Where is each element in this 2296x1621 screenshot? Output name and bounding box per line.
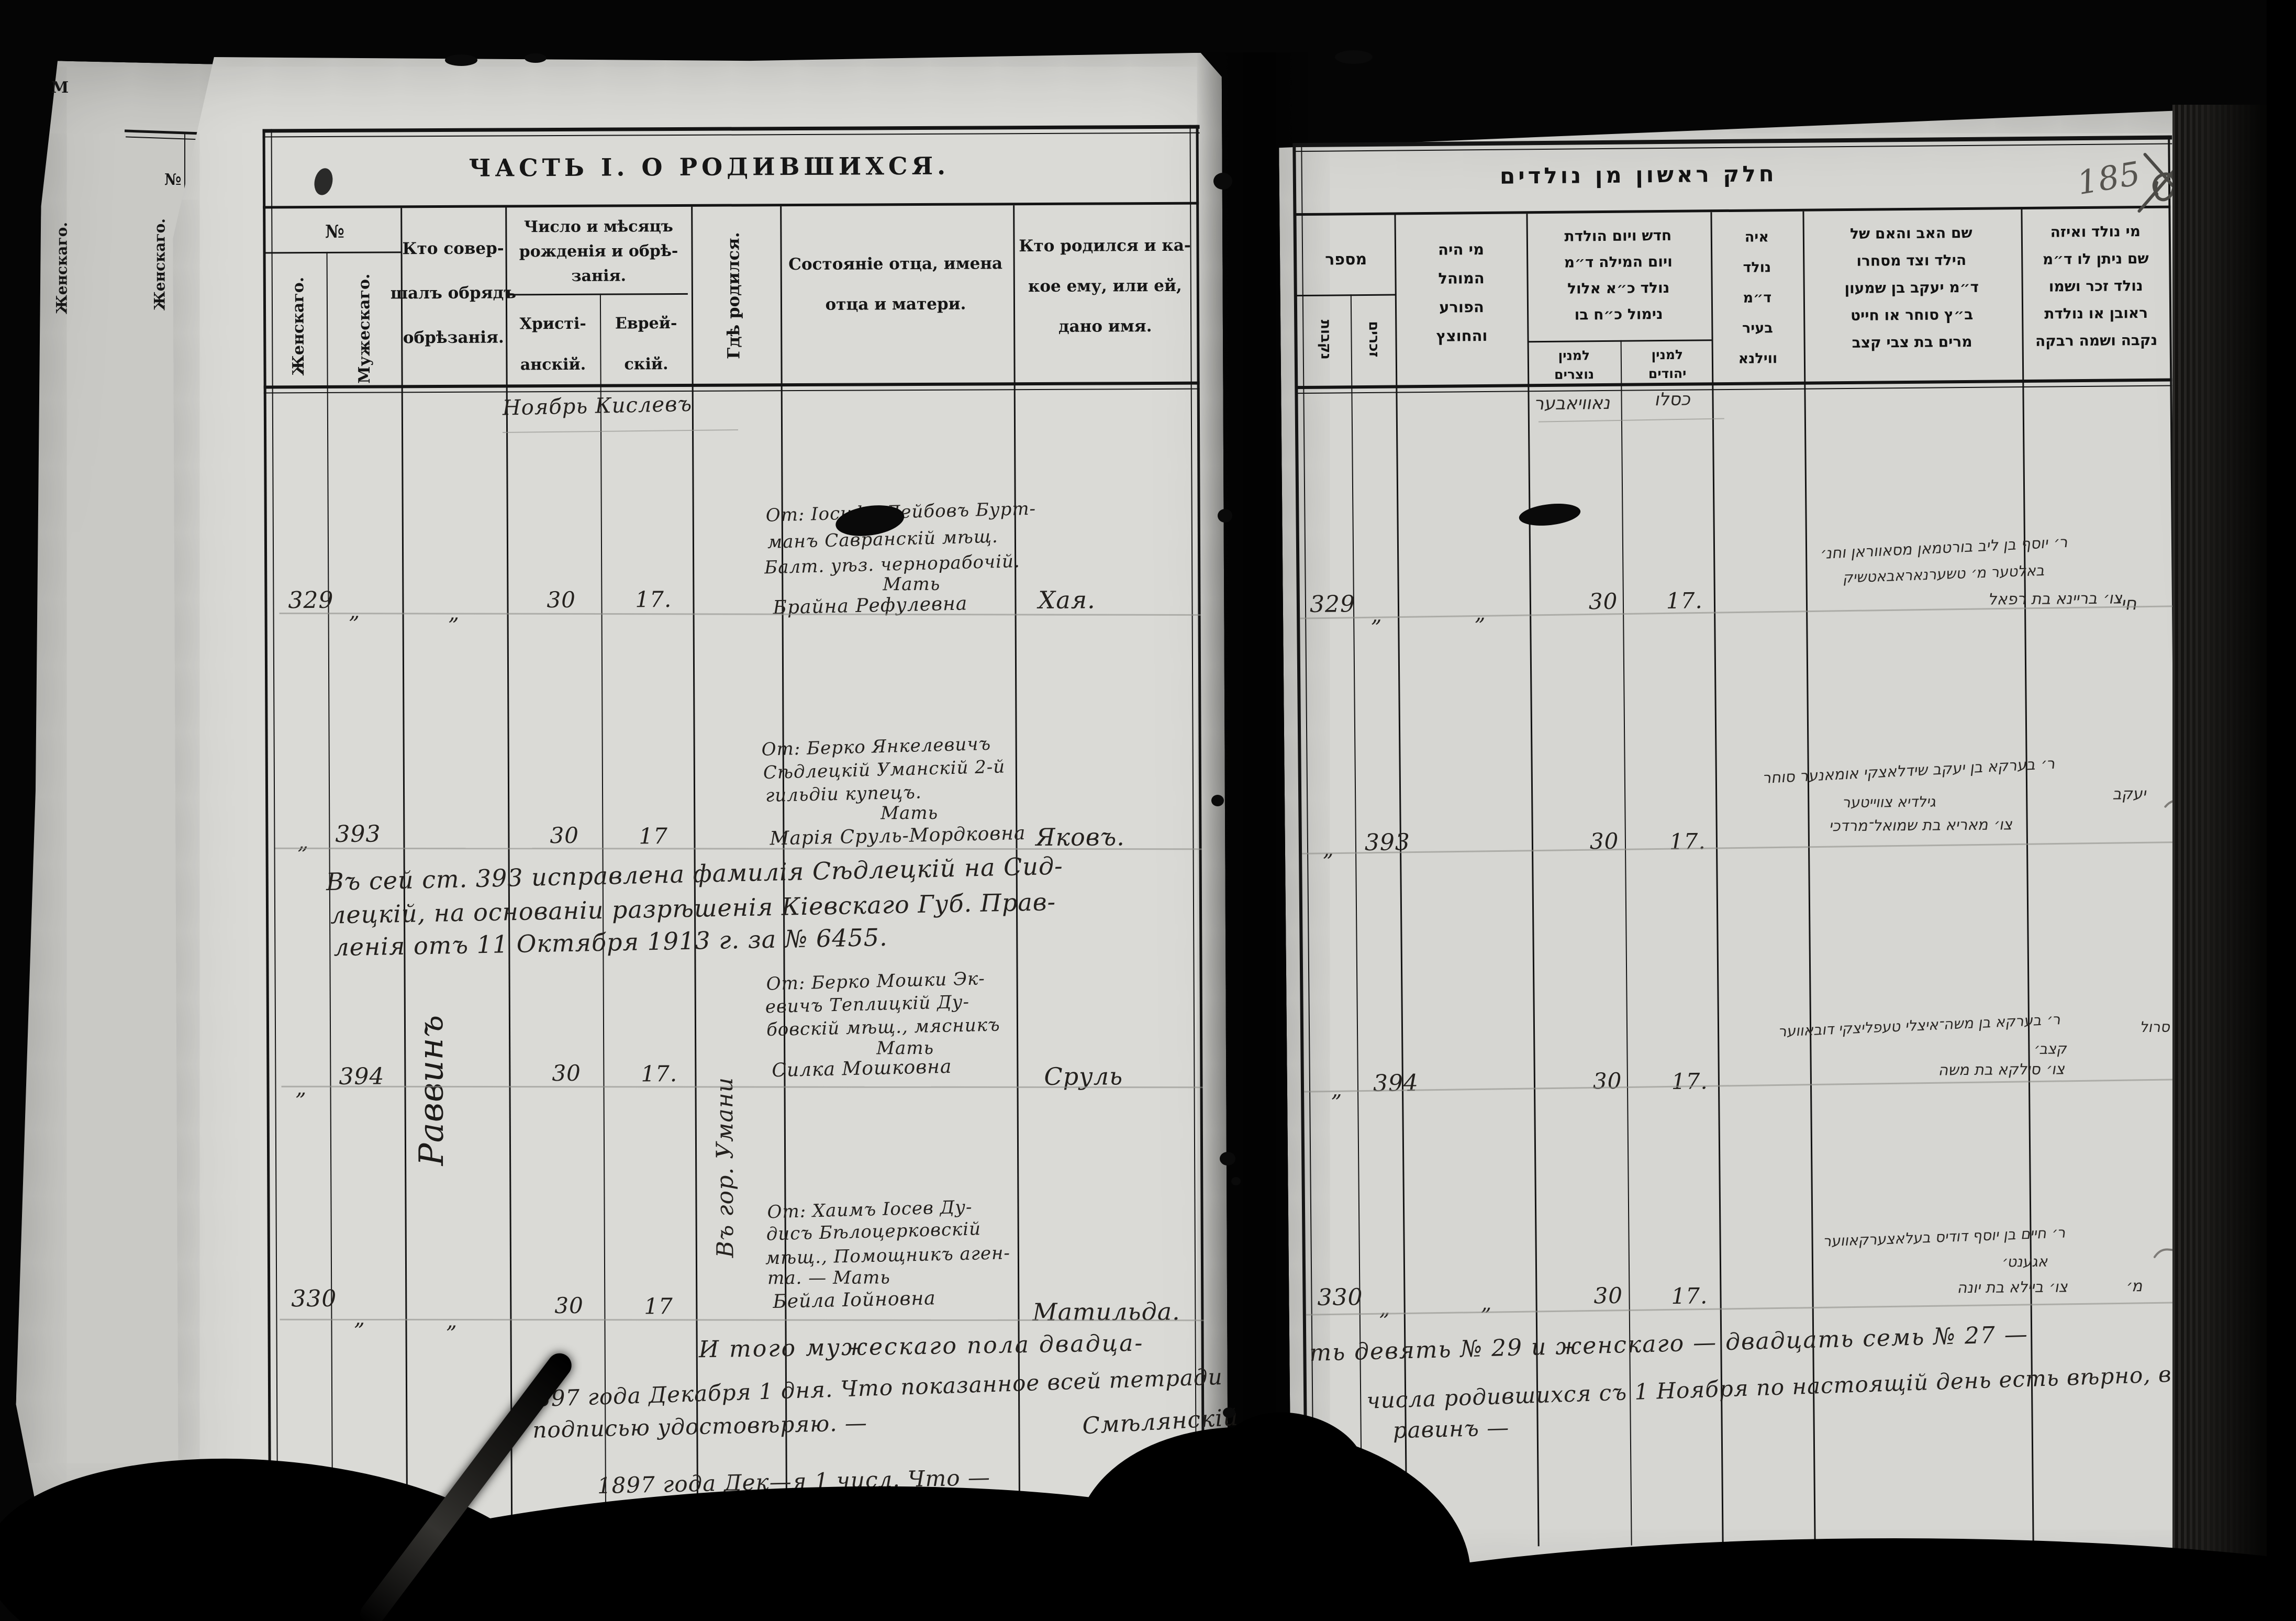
lp-row330-father-line: Бейла Іойновна <box>773 1287 936 1313</box>
rp-row330-father-line: אגענט׳ <box>1921 1253 2050 1271</box>
gutter-hole <box>1213 173 1232 190</box>
lp-dategroup-label-3: занія. <box>571 267 626 285</box>
rp-jewishcount-label-1: למנין <box>1651 347 1683 363</box>
rp-mohel-label-4: והחוצץ <box>1436 327 1487 345</box>
rp-father-label-5: מרים בת צבי קצב <box>1852 333 1972 351</box>
lp-dategroup-label-2: рожденія и обрѣ- <box>519 242 678 261</box>
book-fore-edge <box>2172 105 2277 1602</box>
lp-jewish-label-2: скій. <box>624 355 668 373</box>
lp-row393-name: Яковъ. <box>1035 823 1125 851</box>
rp-dategroup-label-4: נימול כ״ח בו <box>1575 305 1663 323</box>
gutter-hole <box>1211 795 1224 806</box>
lp-row330-ditto-male: „ <box>354 1306 365 1330</box>
rp-mohel-label-1: מי היה <box>1438 240 1484 259</box>
lp-title: ЧАСТЬ I. О РОДИВШИХСЯ. <box>469 152 950 182</box>
lp-row329-ditto-male: „ <box>349 599 360 624</box>
rp-dategroup-label-1: חדש ויום הולדת <box>1564 227 1671 245</box>
lp-row393-father-line: Мать <box>880 803 938 824</box>
gutter-ink-mark <box>1223 1407 1235 1418</box>
rp-row330-name: מ׳ <box>2124 1277 2145 1295</box>
rp-row393-ditto-female: „ <box>1323 837 1334 861</box>
rp-row329-ditto-male: „ <box>1371 603 1383 627</box>
lp-row330-ditto-performer: „ <box>446 1309 458 1333</box>
rp-dategroup-label-2: ויום המילה ד״מ <box>1564 253 1673 271</box>
rp-title: חלק ראשון מן נולדים <box>1500 161 1777 189</box>
rp-dategroup-label-3: נולד כ״א אלול <box>1567 279 1669 297</box>
rp-mohel-label-2: המוהל <box>1438 269 1485 287</box>
rp-name-label-2: שם ניתן לו ד״מ <box>2043 250 2149 268</box>
rp-row393-name: יעקב <box>2112 785 2148 804</box>
outer-edge-mark: М <box>51 79 69 97</box>
rp-month-note-jewish: כסלו <box>1654 389 1693 410</box>
lp-row330-number-female: 330 <box>291 1285 337 1312</box>
lp-row393-ditto-female: „ <box>297 830 309 854</box>
outer-edge-female-label: Женскаго. <box>53 222 71 314</box>
lp-row329-father-line: Мать <box>883 574 940 595</box>
lp-father-label-2: отца и матери. <box>825 295 966 314</box>
rp-name-label-1: מי נולד ואיזה <box>2050 223 2141 241</box>
lp-row394-date-jewish: 17. <box>641 1061 677 1086</box>
lp-no-label: № <box>325 221 344 242</box>
lp-row329-number-female: 329 <box>288 587 333 614</box>
gutter-hole <box>1220 1152 1235 1165</box>
rp-row394-date-christian: 30 <box>1593 1068 1622 1094</box>
lp-row329-date-jewish: 17. <box>635 586 672 612</box>
lp-row393-date-christian: 30 <box>550 823 579 848</box>
rp-row393-date-jewish: 17. <box>1669 828 1706 854</box>
rp-row330-date-christian: 30 <box>1593 1283 1623 1308</box>
rp-where-label-2: נולד <box>1743 259 1771 275</box>
lp-name-label-2: кое ему, или ей, <box>1028 276 1182 296</box>
scanned-metrical-book-spread: № Женскаго. М Женскаго. ЧАСТЬ I. О РОДИВ… <box>0 0 2296 1621</box>
rp-row330-number-female: 330 <box>1317 1284 1363 1311</box>
lp-performer-label-3: обрѣзанія. <box>403 328 504 347</box>
page-top-nick <box>445 54 477 66</box>
rp-row394-ditto-female: „ <box>1331 1078 1343 1102</box>
rp-jewishcount-label-2: יהודים <box>1648 366 1687 382</box>
lp-female-label: Женскаго. <box>289 277 308 376</box>
lp-name-label-1: Кто родился и ка- <box>1019 236 1191 256</box>
rp-father-label-1: שם האב והאם של <box>1850 224 1972 242</box>
rp-row330-father-line: צו׳ ביילא בת יונה <box>1942 1278 2070 1296</box>
lp-performer-label-1: Кто совер- <box>402 239 504 258</box>
under-page-female-label: Женскаго. <box>151 218 169 310</box>
rp-name-label-3: נולד זכר ושמו <box>2049 277 2143 295</box>
rp-row394-name: סרול <box>2139 1018 2172 1036</box>
lp-rabbi-vertical-note: Раввинъ <box>412 1015 451 1166</box>
rp-row330-date-jewish: 17. <box>1671 1283 1708 1309</box>
rp-row329-date-jewish: 17. <box>1666 587 1703 614</box>
rp-row329-ditto-performer: „ <box>1475 601 1486 625</box>
rp-row394-father-line: צו׳ סילקא בת משה <box>1933 1060 2067 1079</box>
lp-row393-date-jewish: 17 <box>639 823 668 849</box>
lp-father-label-1: Состояніе отца, имена <box>788 254 1002 274</box>
page-top-nick <box>1335 50 1373 64</box>
lp-month-note: Ноябрь Кислевъ <box>502 392 692 420</box>
right-black-margin <box>2267 0 2296 1621</box>
lp-row393-number-male: 393 <box>335 820 381 847</box>
lp-performer-label-2: шалъ обрядъ <box>391 283 516 303</box>
rp-footer-attest2: равинъ — <box>1392 1415 1510 1444</box>
page-top-nick <box>525 53 547 63</box>
lp-row329-date-christian: 30 <box>547 587 576 613</box>
lp-male-label: Мужескаго. <box>355 274 374 384</box>
rp-row393-father-line: צו׳ מאריא בת שמואל־מרדכי <box>1813 815 2015 835</box>
lp-row330-date-christian: 30 <box>554 1293 584 1318</box>
rp-father-label-3: ד״מ יעקב בן שמעון <box>1844 279 1979 297</box>
lp-jewish-label-1: Еврей- <box>615 314 677 333</box>
lp-row330-date-jewish: 17 <box>644 1293 673 1319</box>
lp-row329-name: Хая. <box>1038 586 1096 614</box>
rp-row330-ditto-male: „ <box>1379 1296 1390 1320</box>
lp-where-vertical-note: Въ гор. Умани <box>711 1077 739 1258</box>
rp-father-label-4: ב״ץ סוחר או חייט <box>1851 306 1973 324</box>
rp-where-label-5: ווילנא <box>1738 350 1777 367</box>
rp-row394-number-male: 394 <box>1373 1070 1419 1097</box>
rp-christiancount-label-2: נוצרים <box>1554 367 1594 382</box>
lp-christian-label-2: анскій. <box>520 356 586 374</box>
rp-males-label: זכרים <box>1366 321 1383 357</box>
rp-row329-name: חי׳ <box>2113 593 2139 614</box>
rp-month-note-christian: נאוויאבער <box>1533 393 1613 414</box>
lp-row394-father-line: Силка Мошковна <box>772 1056 952 1081</box>
rp-number-label: מספר <box>1325 250 1367 269</box>
rp-row329-date-christian: 30 <box>1589 589 1618 614</box>
lp-christian-label-1: Христі- <box>519 315 586 334</box>
rp-where-label-4: בעיר <box>1742 320 1773 337</box>
lp-row394-ditto-female: „ <box>295 1076 307 1100</box>
rp-row329-number-female: 329 <box>1310 591 1355 618</box>
rp-father-label-2: הילד וצד מסחרו <box>1856 251 1966 270</box>
lp-row330-father-line: та. — Мать <box>767 1267 890 1289</box>
lp-row330-name: Матильда. <box>1032 1297 1180 1326</box>
rp-row394-date-jewish: 17. <box>1671 1068 1708 1094</box>
rp-christiancount-label-1: למנין <box>1558 348 1590 363</box>
rp-name-label-5: נקבה ושמה רבקה <box>2035 331 2158 350</box>
rp-row393-father-line: גילדיא צווייטער <box>1810 793 1938 811</box>
lp-name-label-3: дано имя. <box>1058 317 1152 336</box>
rp-mohel-label-3: הפורע <box>1439 298 1484 316</box>
rp-name-label-4: ראובן או נולדת <box>2044 304 2148 323</box>
rp-females-label: נקבות <box>1318 319 1334 360</box>
gutter-hole <box>1218 509 1232 523</box>
lp-row394-father-line: Мать <box>876 1038 934 1059</box>
under-page-no-label: № <box>164 171 182 189</box>
rp-where-label-1: איה <box>1745 229 1769 245</box>
lp-row394-date-christian: 30 <box>552 1060 581 1086</box>
gutter-ink-mark <box>1231 1177 1241 1185</box>
rp-row394-father-line: קצב׳ <box>2014 1040 2069 1058</box>
lp-where-label: Гдѣ родился. <box>723 232 743 359</box>
lp-dategroup-label-1: Число и мѣсяцъ <box>524 217 673 236</box>
rp-where-label-3: ד״מ <box>1743 290 1771 306</box>
